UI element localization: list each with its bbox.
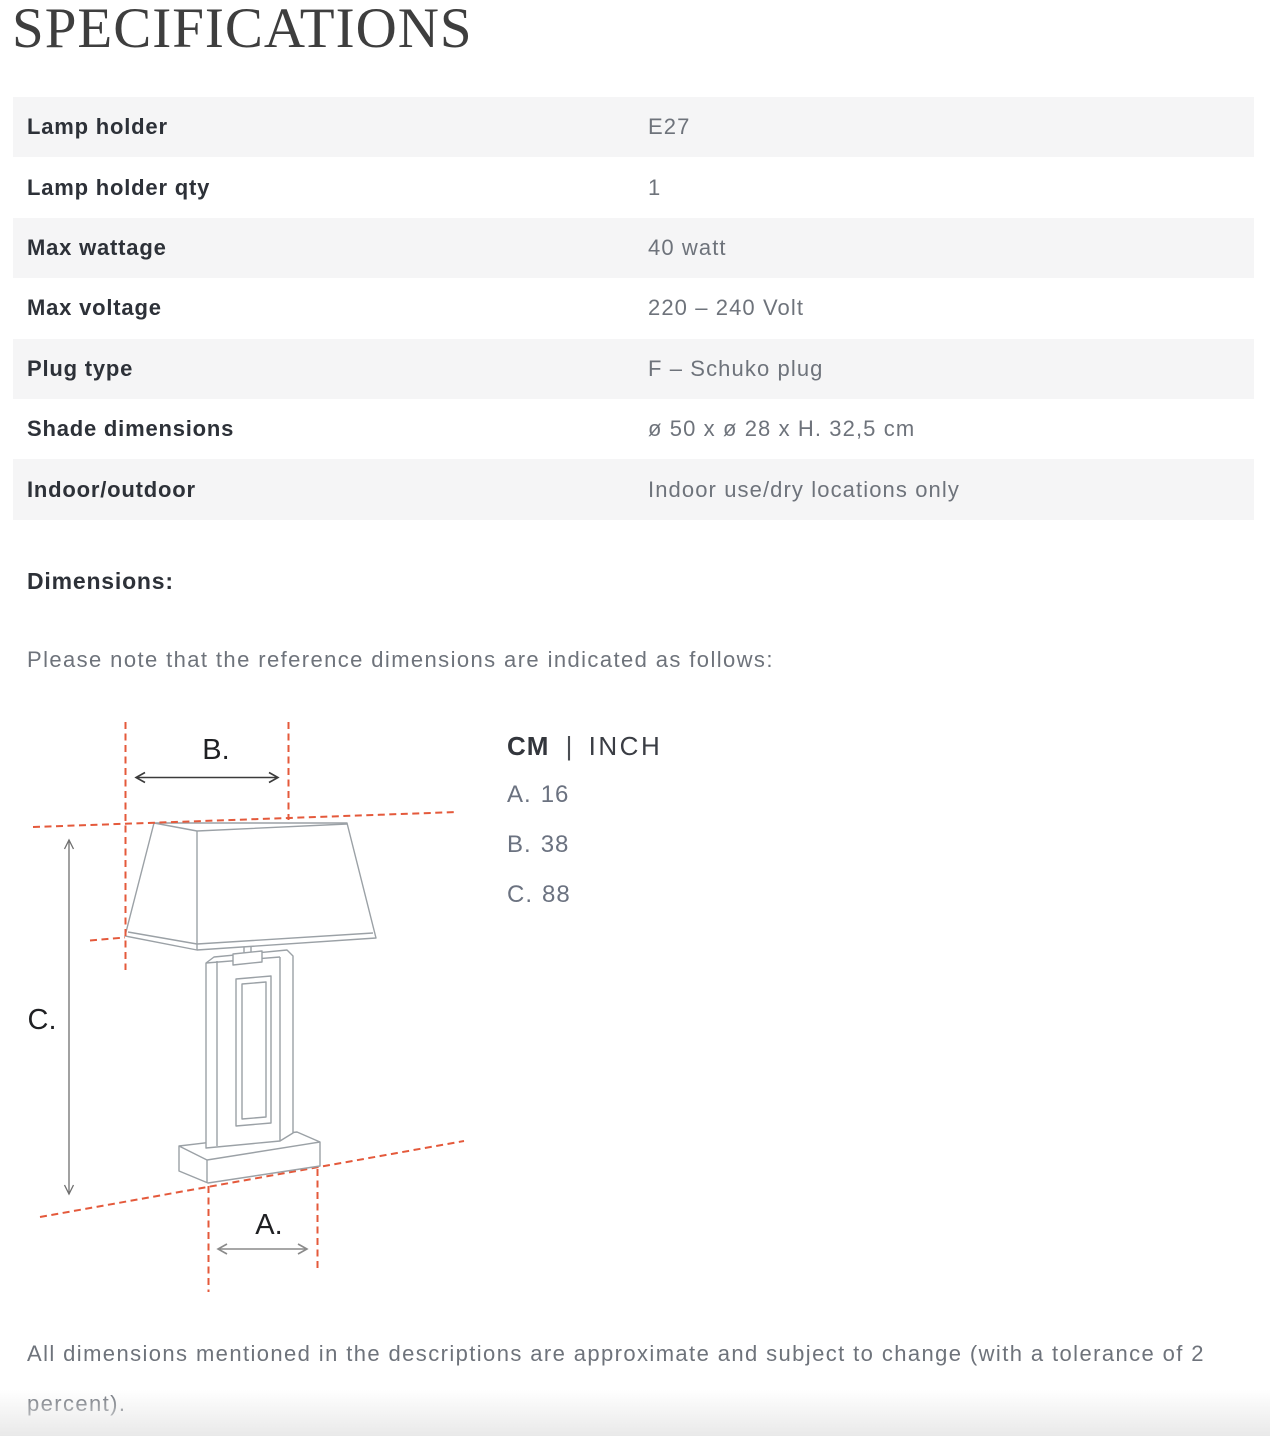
spec-value: F – Schuko plug bbox=[648, 356, 823, 382]
dimension-arrow-c bbox=[65, 840, 74, 1194]
table-row: Lamp holder E27 bbox=[13, 97, 1254, 157]
page-title: SPECIFICATIONS bbox=[12, 0, 473, 61]
legend-entry-key: C. bbox=[507, 881, 533, 909]
spec-table: Lamp holder E27 Lamp holder qty 1 Max wa… bbox=[13, 97, 1254, 520]
spec-label: Indoor/outdoor bbox=[27, 477, 196, 503]
legend-entry-value: 88 bbox=[542, 881, 571, 909]
spec-label: Shade dimensions bbox=[27, 416, 234, 442]
legend-units-heading: CM | INCH bbox=[507, 731, 662, 762]
specifications-page: SPECIFICATIONS Lamp holder E27 Lamp hold… bbox=[0, 0, 1270, 1436]
diagram-label-a: A. bbox=[255, 1209, 282, 1241]
spec-label: Plug type bbox=[27, 356, 133, 382]
legend-unit-inch: INCH bbox=[589, 731, 663, 761]
list-item: A. 16 bbox=[507, 770, 662, 820]
spec-value: 1 bbox=[648, 175, 661, 201]
legend-unit-cm: CM bbox=[507, 731, 549, 761]
spec-value: ø 50 x ø 28 x H. 32,5 cm bbox=[648, 416, 915, 442]
diagram-label-b: B. bbox=[202, 734, 229, 766]
dimension-arrow-b bbox=[136, 773, 278, 783]
spec-value: 220 – 240 Volt bbox=[648, 295, 804, 321]
legend-entry-value: 38 bbox=[541, 831, 570, 859]
spec-label: Max voltage bbox=[27, 295, 162, 321]
lamp-column bbox=[206, 950, 293, 1148]
list-item: C. 88 bbox=[507, 870, 662, 920]
legend-entry-value: 16 bbox=[541, 781, 570, 809]
dimension-arrow-a bbox=[218, 1244, 307, 1254]
lamp-shade bbox=[125, 823, 376, 950]
spec-label: Max wattage bbox=[27, 235, 167, 261]
dimensions-disclaimer: All dimensions mentioned in the descript… bbox=[27, 1329, 1237, 1429]
dimensions-note: Please note that the reference dimension… bbox=[27, 647, 774, 673]
shade-bottom-reference-line bbox=[90, 938, 125, 941]
spec-value: 40 watt bbox=[648, 235, 727, 261]
dimensions-legend: CM | INCH A. 16 B. 38 C. 88 bbox=[507, 731, 662, 920]
dimensions-heading: Dimensions: bbox=[27, 568, 174, 595]
table-row: Lamp holder qty 1 bbox=[13, 157, 1254, 217]
table-row: Max wattage 40 watt bbox=[13, 218, 1254, 278]
legend-entry-key: B. bbox=[507, 831, 532, 859]
lamp-line-drawing bbox=[125, 823, 376, 1183]
diagram-label-c: C. bbox=[28, 1004, 57, 1036]
spec-label: Lamp holder bbox=[27, 114, 168, 140]
legend-entry-key: A. bbox=[507, 781, 532, 809]
spec-value: E27 bbox=[648, 114, 690, 140]
table-row: Plug type F – Schuko plug bbox=[13, 339, 1254, 399]
spec-value: Indoor use/dry locations only bbox=[648, 477, 960, 503]
table-row: Shade dimensions ø 50 x ø 28 x H. 32,5 c… bbox=[13, 399, 1254, 459]
legend-unit-separator: | bbox=[566, 731, 573, 761]
table-row: Max voltage 220 – 240 Volt bbox=[13, 278, 1254, 338]
spec-label: Lamp holder qty bbox=[27, 175, 210, 201]
legend-entries: A. 16 B. 38 C. 88 bbox=[507, 770, 662, 920]
table-row: Indoor/outdoor Indoor use/dry locations … bbox=[13, 459, 1254, 519]
list-item: B. 38 bbox=[507, 820, 662, 870]
